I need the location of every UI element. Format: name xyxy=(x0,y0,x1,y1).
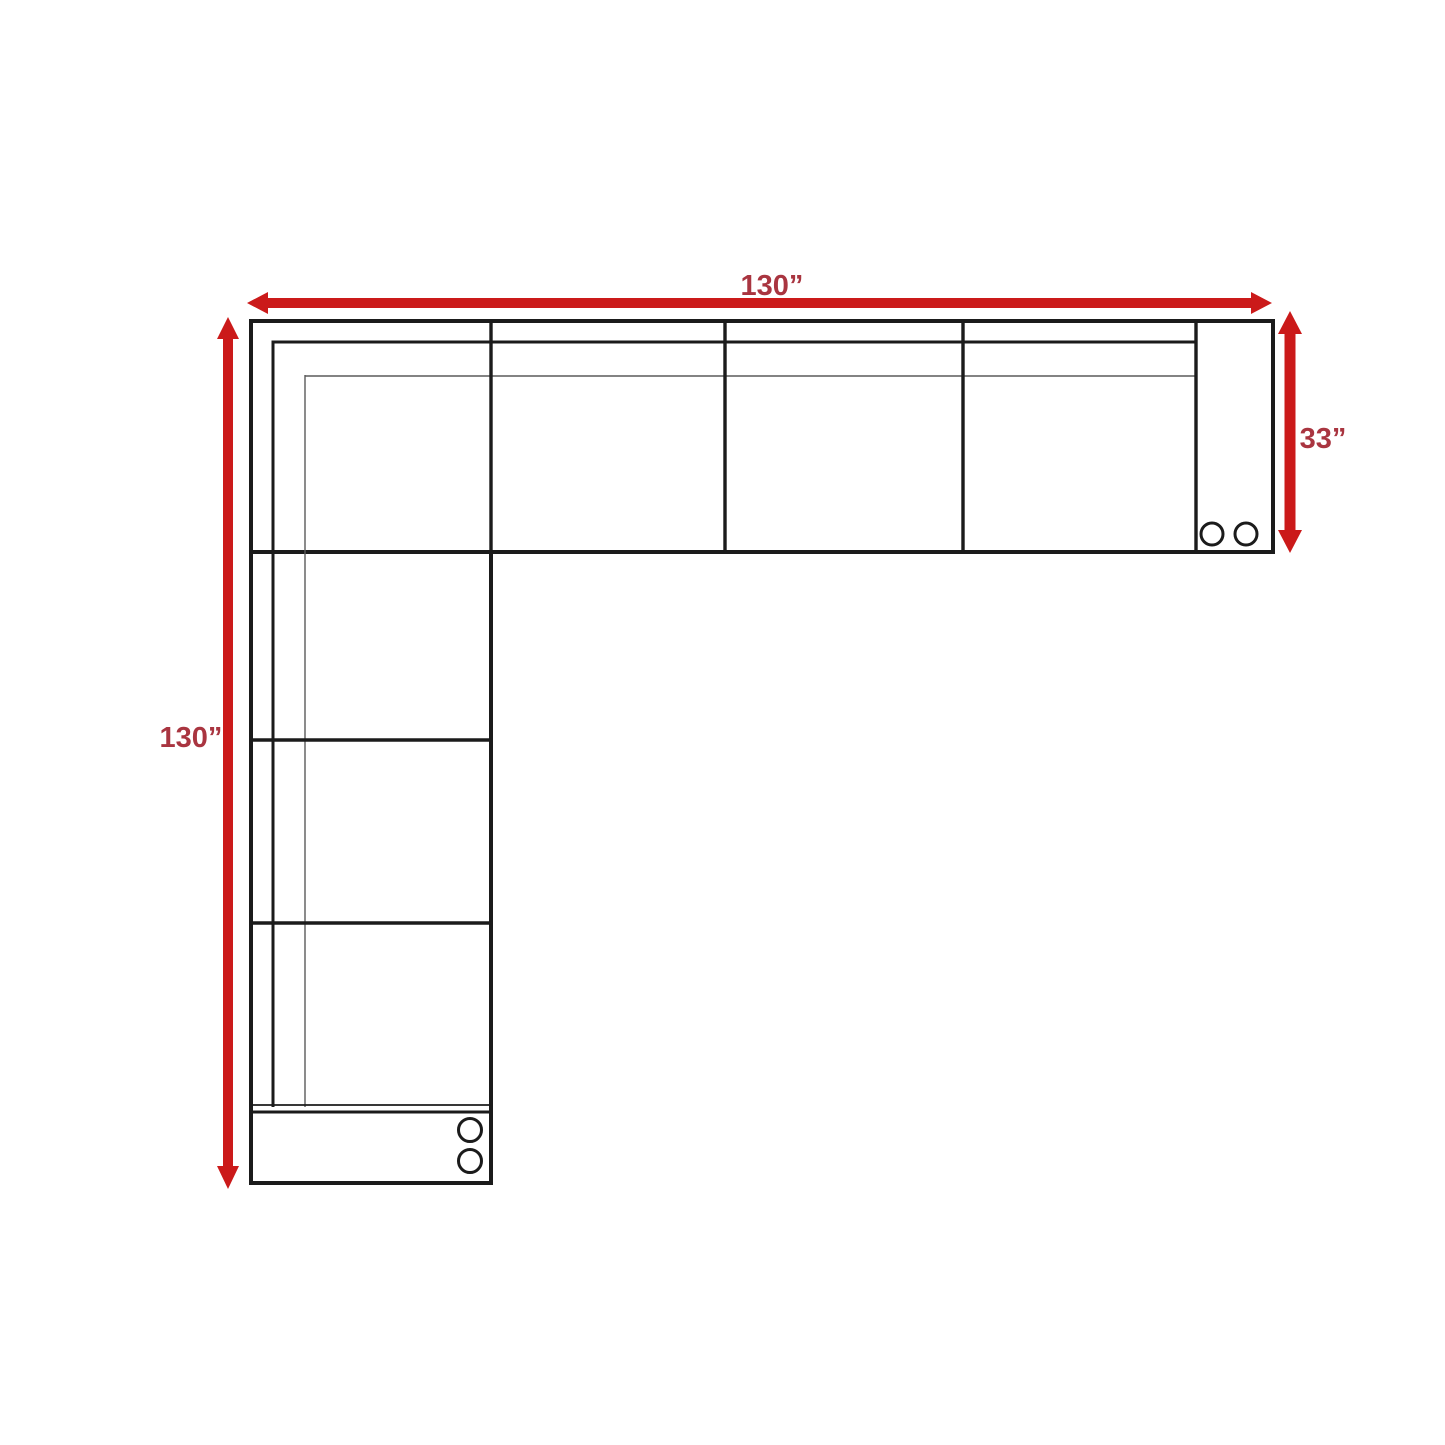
sofa-dimension-diagram: 130” 130” 33” xyxy=(0,0,1445,1445)
arrow-up-head-icon xyxy=(217,317,239,339)
depth-arrow-shaft xyxy=(1285,332,1296,530)
sofa-outer-outline xyxy=(251,321,1273,1183)
cupholder-icon xyxy=(1235,523,1257,545)
length-arrow-shaft xyxy=(223,337,233,1167)
arrow-down-head-icon xyxy=(1278,530,1302,553)
cupholder-icon xyxy=(459,1150,482,1173)
diagram-canvas: 130” 130” 33” xyxy=(0,0,1445,1445)
arrow-up-head-icon xyxy=(1278,311,1302,334)
sofa-plan xyxy=(251,321,1273,1183)
width-dimension: 130” xyxy=(247,270,1272,314)
arrow-down-head-icon xyxy=(217,1166,239,1189)
arrow-left-head-icon xyxy=(247,292,268,314)
cupholder-icon xyxy=(1201,523,1223,545)
arrow-right-head-icon xyxy=(1251,292,1272,314)
depth-dimension: 33” xyxy=(1278,311,1346,553)
width-dimension-label: 130” xyxy=(741,270,804,302)
length-dimension-label: 130” xyxy=(160,722,223,754)
cupholder-icon xyxy=(459,1119,482,1142)
length-dimension: 130” xyxy=(160,317,239,1189)
depth-dimension-label: 33” xyxy=(1300,423,1347,455)
